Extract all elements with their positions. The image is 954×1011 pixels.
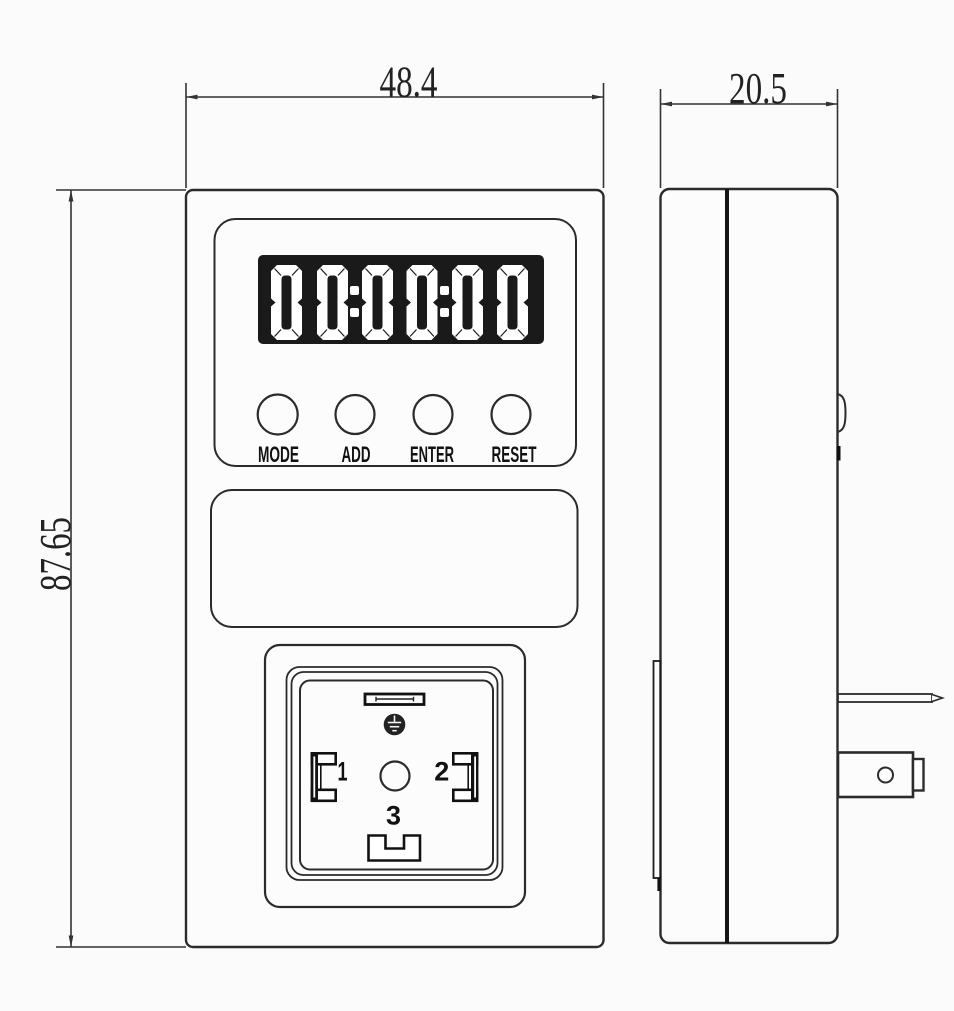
svg-text:48.4: 48.4 <box>380 58 438 107</box>
svg-text:MODE: MODE <box>258 442 299 467</box>
svg-text:87.65: 87.65 <box>31 517 80 591</box>
svg-text:2: 2 <box>434 757 449 787</box>
svg-text:RESET: RESET <box>492 442 537 467</box>
svg-text:3: 3 <box>386 801 401 831</box>
svg-text:1: 1 <box>338 757 348 787</box>
svg-text:ADD: ADD <box>342 442 371 467</box>
svg-text:20.5: 20.5 <box>729 64 787 113</box>
svg-text:ENTER: ENTER <box>410 442 454 467</box>
